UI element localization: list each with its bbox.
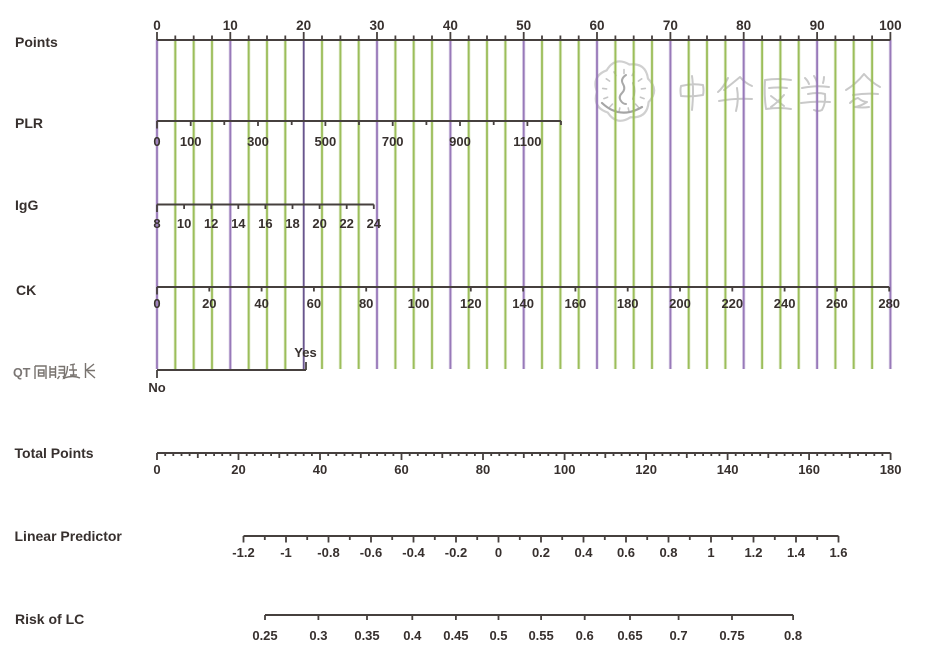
svg-text:100: 100 xyxy=(180,134,202,149)
svg-text:1.2: 1.2 xyxy=(744,545,762,560)
svg-text:1100: 1100 xyxy=(513,134,541,149)
svg-text:0.25: 0.25 xyxy=(252,628,277,643)
svg-text:Total Points: Total Points xyxy=(15,445,94,461)
svg-text:180: 180 xyxy=(880,462,902,477)
svg-text:40: 40 xyxy=(254,296,268,311)
svg-text:0: 0 xyxy=(153,134,160,149)
svg-text:0.3: 0.3 xyxy=(309,628,327,643)
svg-text:Points: Points xyxy=(15,34,58,50)
svg-text:0.4: 0.4 xyxy=(403,628,422,643)
svg-text:160: 160 xyxy=(565,296,587,311)
svg-text:60: 60 xyxy=(307,296,321,311)
svg-text:Risk of LC: Risk of LC xyxy=(15,611,84,627)
svg-text:100: 100 xyxy=(554,462,576,477)
svg-text:-0.2: -0.2 xyxy=(445,545,467,560)
svg-text:1: 1 xyxy=(707,545,714,560)
svg-text:16: 16 xyxy=(258,216,272,231)
svg-text:120: 120 xyxy=(460,296,482,311)
svg-text:0.35: 0.35 xyxy=(354,628,379,643)
svg-text:20: 20 xyxy=(202,296,216,311)
svg-text:20: 20 xyxy=(231,462,245,477)
svg-text:8: 8 xyxy=(153,216,160,231)
svg-text:24: 24 xyxy=(367,216,382,231)
svg-text:-1: -1 xyxy=(280,545,292,560)
svg-text:0: 0 xyxy=(153,18,161,33)
svg-text:0.8: 0.8 xyxy=(659,545,677,560)
svg-text:200: 200 xyxy=(669,296,691,311)
svg-text:1.6: 1.6 xyxy=(829,545,847,560)
svg-text:0.65: 0.65 xyxy=(617,628,642,643)
svg-text:180: 180 xyxy=(617,296,639,311)
svg-text:-0.4: -0.4 xyxy=(402,545,425,560)
svg-text:No: No xyxy=(148,380,165,395)
svg-text:PLR: PLR xyxy=(15,115,43,131)
svg-text:12: 12 xyxy=(204,216,218,231)
svg-text:240: 240 xyxy=(774,296,796,311)
svg-text:220: 220 xyxy=(721,296,743,311)
svg-text:14: 14 xyxy=(231,216,246,231)
svg-text:30: 30 xyxy=(369,18,384,33)
svg-text:80: 80 xyxy=(736,18,751,33)
svg-text:100: 100 xyxy=(879,18,902,33)
svg-text:70: 70 xyxy=(663,18,678,33)
svg-text:120: 120 xyxy=(635,462,657,477)
svg-text:0: 0 xyxy=(495,545,502,560)
svg-text:0.6: 0.6 xyxy=(576,628,594,643)
svg-text:0: 0 xyxy=(153,296,160,311)
svg-text:40: 40 xyxy=(443,18,458,33)
svg-text:10: 10 xyxy=(177,216,191,231)
svg-text:QT: QT xyxy=(13,366,31,380)
svg-text:60: 60 xyxy=(589,18,604,33)
svg-text:10: 10 xyxy=(223,18,238,33)
svg-text:500: 500 xyxy=(315,134,337,149)
svg-text:300: 300 xyxy=(247,134,269,149)
svg-text:-0.6: -0.6 xyxy=(360,545,382,560)
svg-text:CK: CK xyxy=(16,282,36,298)
svg-text:0.75: 0.75 xyxy=(719,628,744,643)
svg-text:Linear Predictor: Linear Predictor xyxy=(15,528,123,544)
svg-text:0.45: 0.45 xyxy=(443,628,468,643)
svg-text:40: 40 xyxy=(313,462,327,477)
svg-text:1.4: 1.4 xyxy=(787,545,806,560)
svg-text:50: 50 xyxy=(516,18,531,33)
svg-text:0.6: 0.6 xyxy=(617,545,635,560)
svg-text:0.2: 0.2 xyxy=(532,545,550,560)
svg-text:20: 20 xyxy=(296,18,311,33)
svg-text:0.55: 0.55 xyxy=(528,628,553,643)
svg-text:60: 60 xyxy=(394,462,408,477)
svg-text:160: 160 xyxy=(798,462,820,477)
svg-text:0.8: 0.8 xyxy=(784,628,802,643)
svg-text:-0.8: -0.8 xyxy=(317,545,339,560)
svg-text:700: 700 xyxy=(382,134,404,149)
svg-text:18: 18 xyxy=(285,216,299,231)
svg-text:280: 280 xyxy=(878,296,900,311)
svg-text:0.7: 0.7 xyxy=(670,628,688,643)
svg-text:-1.2: -1.2 xyxy=(232,545,254,560)
svg-text:80: 80 xyxy=(359,296,373,311)
svg-text:22: 22 xyxy=(339,216,353,231)
svg-text:140: 140 xyxy=(512,296,534,311)
svg-text:100: 100 xyxy=(408,296,430,311)
svg-text:IgG: IgG xyxy=(15,197,38,213)
svg-text:80: 80 xyxy=(476,462,490,477)
svg-text:900: 900 xyxy=(449,134,471,149)
svg-text:0.4: 0.4 xyxy=(574,545,593,560)
svg-text:0.5: 0.5 xyxy=(489,628,507,643)
svg-text:260: 260 xyxy=(826,296,848,311)
svg-text:20: 20 xyxy=(312,216,326,231)
svg-text:0: 0 xyxy=(153,462,160,477)
svg-text:140: 140 xyxy=(717,462,739,477)
svg-text:90: 90 xyxy=(810,18,825,33)
svg-text:Yes: Yes xyxy=(294,345,316,360)
